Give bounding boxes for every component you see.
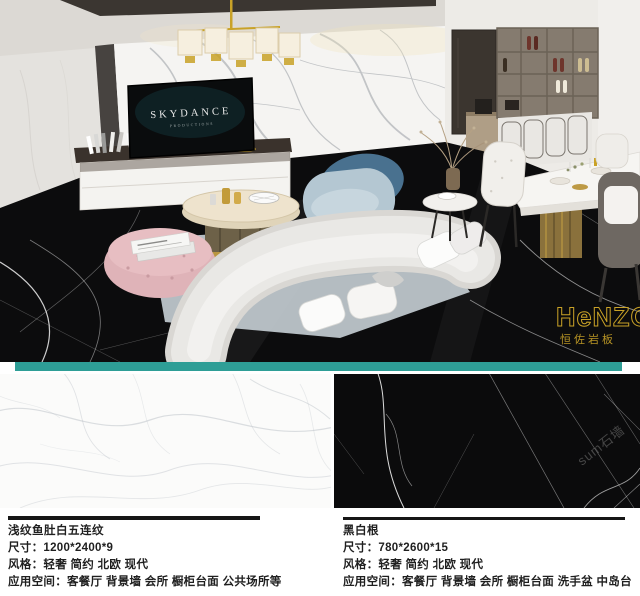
coffee-machine bbox=[475, 99, 492, 114]
room-render: SKYDANCE PRODUCTIONS bbox=[0, 0, 640, 362]
right-underline bbox=[343, 517, 625, 520]
black-tile-swatch: sum石墙 bbox=[334, 374, 640, 508]
product-space: 应用空间：客餐厅 背景墙 会所 橱柜台面 公共场所等 bbox=[8, 574, 328, 591]
product-name: 黑白根 bbox=[343, 523, 638, 540]
product-info-right: 黑白根 尺寸：780*2600*15 风格：轻奢 简约 北欧 现代 应用空间：客… bbox=[343, 523, 638, 591]
product-style: 风格：轻奢 简约 北欧 现代 bbox=[343, 557, 638, 574]
tv: SKYDANCE PRODUCTIONS bbox=[128, 78, 254, 158]
white-tile-graphic bbox=[0, 374, 331, 508]
product-info-left: 浅纹鱼肚白五连纹 尺寸：1200*2400*9 风格：轻奢 简约 北欧 现代 应… bbox=[8, 523, 328, 591]
room-scene-graphic: SKYDANCE PRODUCTIONS bbox=[0, 0, 640, 362]
brand-logo-text: HeNZO bbox=[556, 302, 640, 332]
brand-logo-subtext: 恒佐岩板 bbox=[560, 332, 616, 346]
tile-promo-poster: SKYDANCE PRODUCTIONS bbox=[0, 0, 640, 596]
product-name: 浅纹鱼肚白五连纹 bbox=[8, 523, 328, 540]
product-style: 风格：轻奢 简约 北欧 现代 bbox=[8, 557, 328, 574]
white-tile-swatch bbox=[0, 374, 331, 508]
black-tile-graphic: sum石墙 bbox=[334, 374, 640, 508]
plant-vase bbox=[446, 168, 460, 190]
dining-chair-back bbox=[596, 134, 628, 168]
product-space: 应用空间：客餐厅 背景墙 会所 橱柜台面 洗手盆 中岛台 bbox=[343, 574, 638, 591]
product-size: 尺寸：780*2600*15 bbox=[343, 540, 638, 557]
left-underline bbox=[8, 516, 260, 520]
wine-cabinet bbox=[497, 28, 598, 118]
product-size: 尺寸：1200*2400*9 bbox=[8, 540, 328, 557]
teal-divider-bar bbox=[15, 362, 622, 371]
